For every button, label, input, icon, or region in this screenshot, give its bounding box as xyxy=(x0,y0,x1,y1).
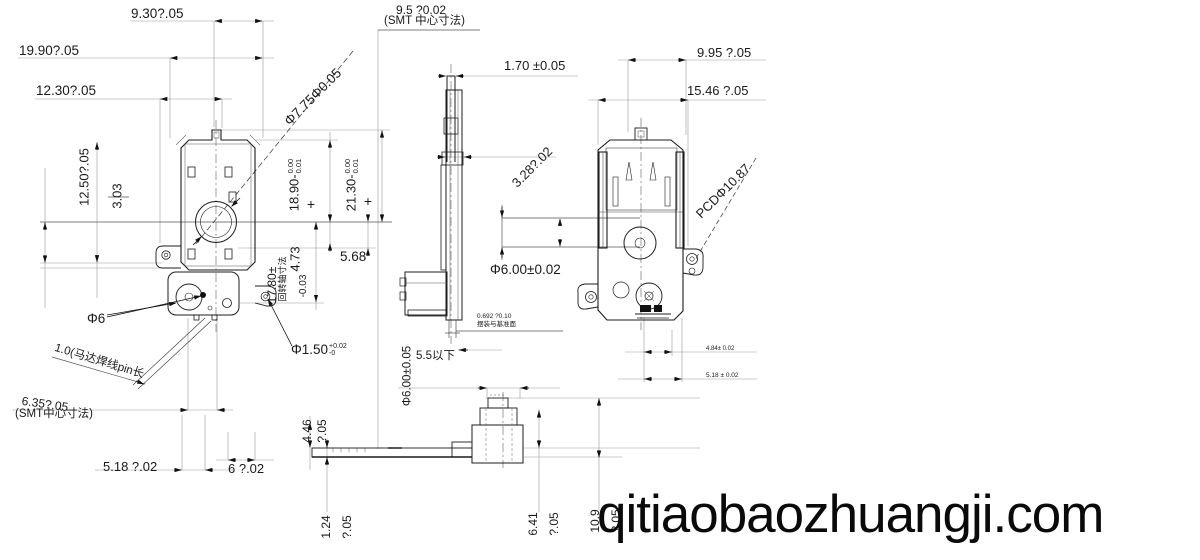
dim-5-18-b: 5.18 ± 0.02 xyxy=(706,373,738,380)
dim-5-18: 5.18 ?.02 xyxy=(103,460,157,473)
smt-center-note: (SMT 中心寸法) xyxy=(384,16,465,28)
dim-1-70: 1.70 ±0.05 xyxy=(504,59,565,72)
dim-4-84: 4.84± 0.02 xyxy=(706,346,734,352)
dim-18-90-value: 18.90- xyxy=(286,174,301,211)
dim-6-41-tol: ?.05 xyxy=(548,512,560,535)
dim-5-5-max: 5.5以下 xyxy=(416,351,455,363)
plus-mark-2: + xyxy=(364,194,372,208)
dim-phi-6-00-002: Φ6.00±0.02 xyxy=(490,263,561,277)
dim-phi-6-00-005: Φ6.00±0.05 xyxy=(402,346,414,406)
rotation-axis-note: 回转轴寸法 xyxy=(279,256,288,301)
dim-3-03: 3.03 xyxy=(111,183,124,208)
dim-1-24-tol: ?.05 xyxy=(341,515,353,538)
dim-21-30-tol-lower: 0.01 xyxy=(352,159,360,174)
dim-minus-0-03: -0.03 xyxy=(299,275,309,298)
dim-21-30-value: 21.30- xyxy=(343,174,358,211)
dim-1-24: 1.24 xyxy=(320,515,332,538)
dim-19-90: 19.90?.05 xyxy=(19,44,79,58)
technical-drawing xyxy=(0,0,1200,560)
dim-phi-1-50-value: Φ1.50 xyxy=(291,342,328,357)
dim-15-46: 15.46 ?.05 xyxy=(687,84,748,97)
dim-5-68: 5.68 xyxy=(340,250,366,264)
dim-4-46-tol: ?.05 xyxy=(316,419,328,442)
plus-mark-1: + xyxy=(307,197,315,211)
dim-9-95: 9.95 ?.05 xyxy=(697,46,751,59)
runout-datum-note: 摆装与基准面 xyxy=(477,322,516,329)
dim-6: 6 ?.02 xyxy=(228,462,264,475)
engineering-drawing-page: 9.30?.05 19.90?.05 12.30?.05 12.50?.05 3… xyxy=(0,0,1200,560)
runout-value: 0.692 ?0.10 xyxy=(477,314,511,321)
dim-17-80: 17.80± xyxy=(266,267,278,304)
smt-center-note-2: (SMT中心寸法) xyxy=(15,409,93,421)
dim-phi-1-50: Φ1.50+0.02-0 xyxy=(291,343,347,358)
dim-phi-1-50-tol-upper: +0.02 xyxy=(329,343,347,350)
dim-12-30: 12.30?.05 xyxy=(36,84,96,98)
dim-18-90-tol-lower: 0.01 xyxy=(295,159,303,174)
dim-phi-1-50-tol-lower: -0 xyxy=(329,350,347,357)
dim-21-30: 21.30-0.000.01 xyxy=(344,159,360,211)
dim-18-90: 18.90-0.000.01 xyxy=(287,159,303,211)
dim-phi-6: Φ6 xyxy=(87,312,105,326)
dim-9-30: 9.30?.05 xyxy=(131,7,184,21)
dim-4-73: 4.73 xyxy=(289,246,302,271)
dim-6-41: 6.41 xyxy=(527,512,539,535)
dim-12-50: 12.50?.05 xyxy=(78,148,91,206)
watermark: qitiaobaozhuangji.com xyxy=(597,484,1103,545)
dim-4-46: 4.46 xyxy=(301,419,313,442)
